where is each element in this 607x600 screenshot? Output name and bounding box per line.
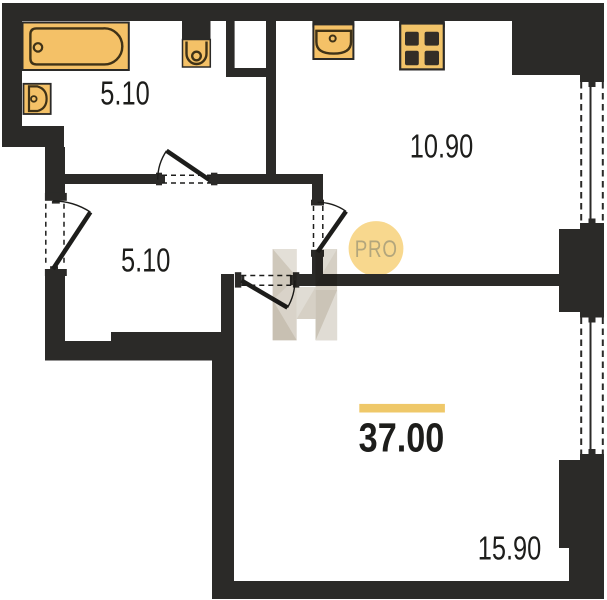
svg-text:15.90: 15.90 [478,530,542,567]
svg-text:5.10: 5.10 [100,75,149,112]
svg-text:37.00: 37.00 [359,416,445,462]
svg-text:PRO: PRO [355,235,398,263]
svg-text:10.90: 10.90 [410,128,474,165]
svg-text:5.10: 5.10 [121,242,170,279]
